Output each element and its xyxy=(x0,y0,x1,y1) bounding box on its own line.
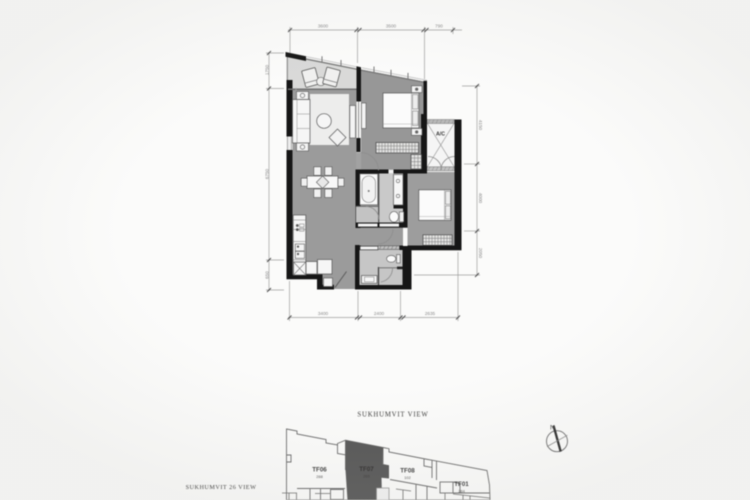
svg-text:SUKHUMVIT 26 VIEW: SUKHUMVIT 26 VIEW xyxy=(186,484,257,491)
svg-text:TF06: TF06 xyxy=(312,467,327,474)
svg-text:790: 790 xyxy=(435,24,443,29)
svg-text:TF01: TF01 xyxy=(454,481,469,488)
svg-text:3500: 3500 xyxy=(386,24,397,29)
svg-text:A/C: A/C xyxy=(436,132,445,138)
svg-text:SUKHUMVIT VIEW: SUKHUMVIT VIEW xyxy=(357,412,428,419)
svg-text:102: 102 xyxy=(404,475,411,480)
svg-text:284: 284 xyxy=(458,488,465,493)
svg-text:3600: 3600 xyxy=(318,24,329,29)
svg-text:3400: 3400 xyxy=(318,311,329,316)
svg-text:650: 650 xyxy=(265,271,270,279)
svg-text:TF07: TF07 xyxy=(359,466,374,473)
svg-text:TF08: TF08 xyxy=(400,468,415,475)
svg-text:4150: 4150 xyxy=(478,120,483,131)
svg-text:2635: 2635 xyxy=(425,311,436,316)
svg-text:288: 288 xyxy=(316,474,323,479)
svg-text:2400: 2400 xyxy=(374,311,385,316)
svg-text:6750: 6750 xyxy=(265,168,270,179)
svg-text:265: 265 xyxy=(363,473,370,478)
svg-text:1750: 1750 xyxy=(265,64,270,75)
svg-text:N: N xyxy=(550,425,555,432)
svg-text:4000: 4000 xyxy=(478,193,483,204)
svg-text:2050: 2050 xyxy=(478,248,483,259)
